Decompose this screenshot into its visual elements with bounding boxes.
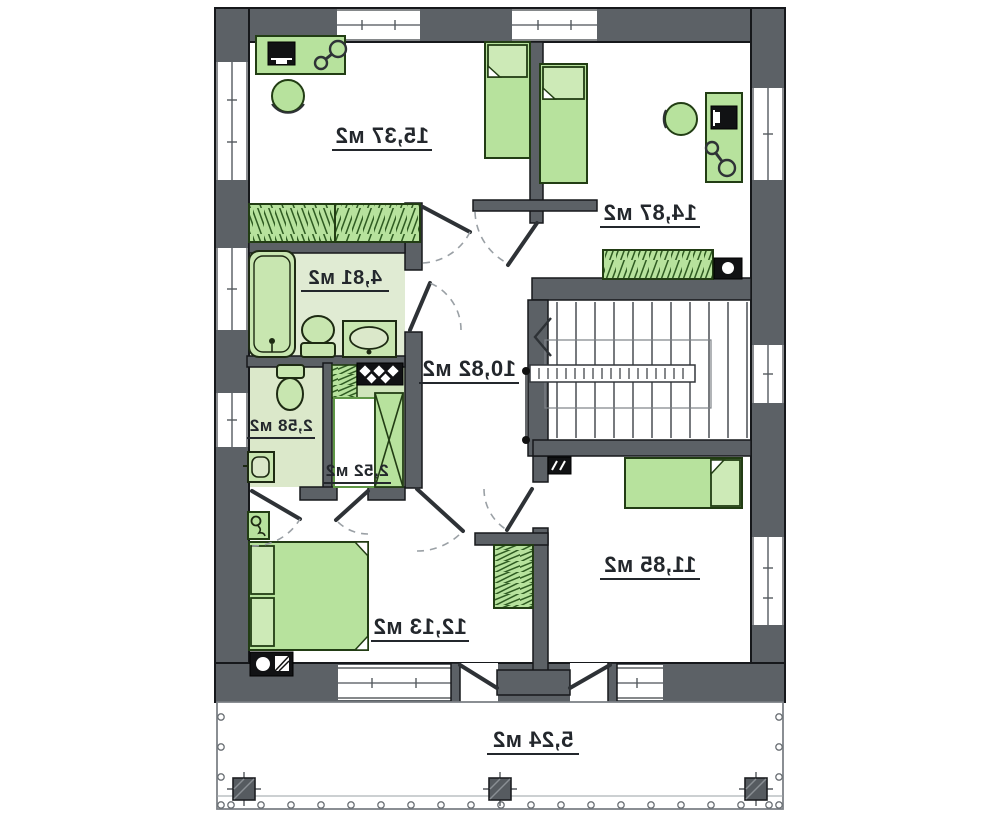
- window: [752, 88, 784, 180]
- washbasin-icon: [243, 452, 274, 482]
- balcony: [217, 702, 783, 809]
- wall: [475, 533, 548, 545]
- window: [752, 345, 784, 403]
- sink-icon: [343, 321, 396, 357]
- window: [216, 248, 248, 330]
- wardrobe-icon: [249, 204, 420, 242]
- bed-icon: [540, 64, 587, 183]
- bedroom-bottom-right-furniture: [548, 457, 742, 508]
- bed-icon: [249, 542, 368, 650]
- room-area-label: 4,81 м2: [308, 267, 382, 289]
- room-area-label: 2,58 м2: [249, 416, 312, 435]
- wall: [300, 487, 337, 500]
- monitor-icon: [711, 106, 737, 129]
- door-leaf-icon: [423, 207, 470, 263]
- room-area-label: 15,37 м2: [335, 123, 429, 148]
- room-area-label: 2,52 м2: [325, 461, 388, 480]
- radiator-icon: [548, 457, 571, 474]
- wall: [405, 332, 422, 488]
- window: [338, 665, 451, 700]
- window: [752, 537, 784, 625]
- wall: [451, 663, 460, 702]
- stool-icon: [664, 103, 697, 135]
- window: [216, 62, 248, 180]
- door-leaf-icon: [336, 491, 368, 534]
- wall: [533, 440, 751, 456]
- room-area-label: 12,13 м2: [373, 614, 467, 639]
- dresser-icon: [250, 652, 293, 676]
- room-area-label: 10,82 м2: [422, 356, 516, 381]
- window: [612, 665, 663, 700]
- bedroom-top-right-furniture: [540, 64, 742, 279]
- floor-plan-canvas: 15,37 м2 14,87 м2 4,81 м2 10,82 м2 2,58 …: [0, 0, 1000, 821]
- bed-icon: [625, 458, 742, 508]
- wall: [533, 528, 548, 673]
- door-leaf-icon: [484, 489, 532, 530]
- window: [216, 393, 248, 447]
- room-area-label: 14,87 м2: [603, 200, 697, 225]
- door-leaf-icon: [410, 283, 461, 330]
- monitor-icon: [268, 42, 295, 65]
- wall: [533, 456, 548, 482]
- wall: [608, 663, 617, 702]
- nightstand-lamp-icon: [248, 512, 269, 539]
- radiator-icon: [714, 258, 742, 279]
- room-area-label: 5,24 м2: [493, 727, 574, 752]
- wardrobe-icon: [494, 545, 533, 608]
- balcony-door-pier: [497, 670, 570, 695]
- wardrobe-icon: [603, 250, 713, 279]
- floor-plan: 15,37 м2 14,87 м2 4,81 м2 10,82 м2 2,58 …: [0, 0, 1000, 821]
- shelf-icon: [332, 365, 357, 398]
- bed-icon: [485, 42, 530, 158]
- door-leaf-icon: [417, 489, 463, 551]
- door-leaf-icon: [475, 212, 537, 265]
- toilet-icon: [277, 365, 304, 410]
- wall: [368, 487, 405, 500]
- window: [512, 9, 597, 41]
- staircase: [522, 302, 747, 444]
- vent-panel-icon: [357, 363, 403, 385]
- toilet-icon: [301, 316, 335, 357]
- wall: [473, 200, 597, 211]
- wall: [532, 278, 751, 300]
- window: [337, 9, 420, 41]
- room-area-label: 11,85 м2: [604, 552, 696, 577]
- bathtub-icon: [249, 251, 295, 357]
- stool-icon: [272, 80, 304, 113]
